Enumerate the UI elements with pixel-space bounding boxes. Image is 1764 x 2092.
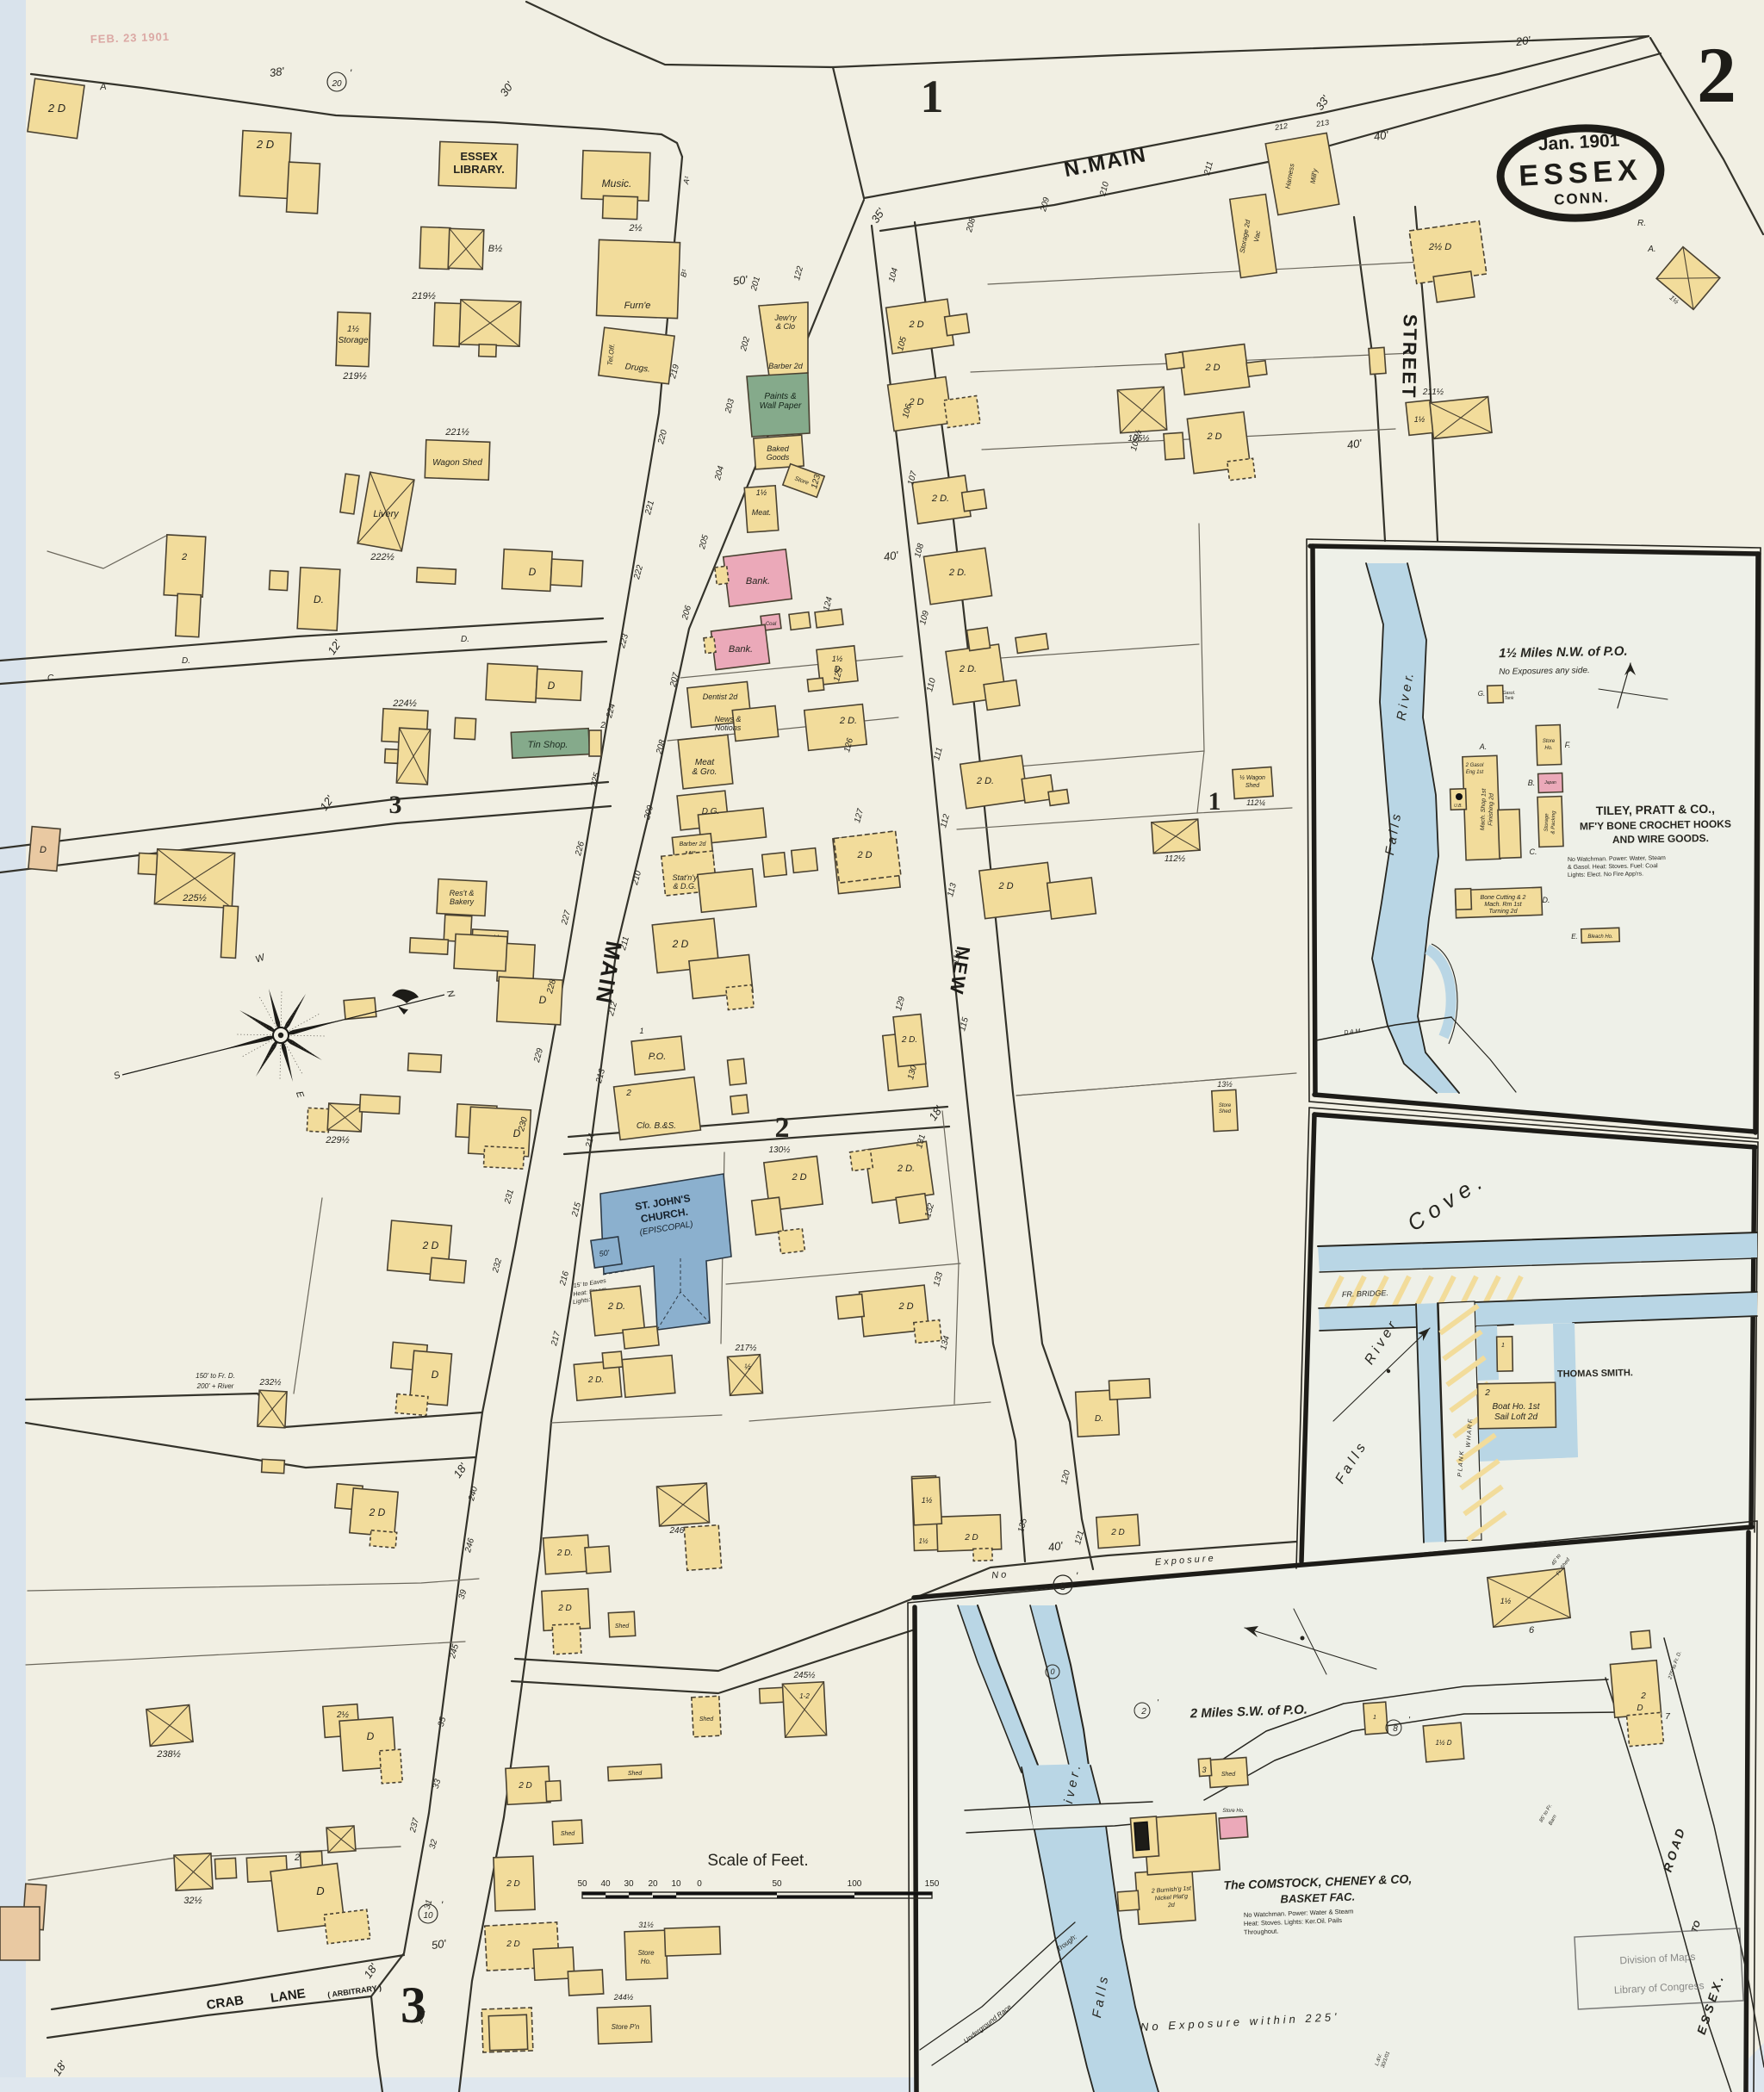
svg-text:1½: 1½: [832, 655, 843, 663]
svg-text:2 D.: 2 D.: [587, 1375, 604, 1385]
svg-text:1: 1: [921, 71, 944, 122]
svg-text:20': 20': [1514, 34, 1531, 48]
svg-text:2: 2: [625, 1089, 631, 1098]
svg-text:Goods: Goods: [767, 453, 790, 462]
svg-text:2 D.: 2 D.: [556, 1549, 573, 1558]
svg-text:D.: D.: [1543, 896, 1550, 904]
svg-text:THOMAS SMITH.: THOMAS SMITH.: [1557, 1368, 1633, 1380]
svg-text:A.: A.: [1647, 245, 1655, 254]
svg-text:Bone Cutting & 2: Bone Cutting & 2: [1481, 895, 1526, 901]
svg-text:P.O.: P.O.: [649, 1052, 667, 1062]
svg-text:10: 10: [671, 1879, 681, 1889]
svg-text:Ho.: Ho.: [1544, 746, 1552, 751]
svg-text:2 D.: 2 D.: [976, 776, 994, 786]
svg-text:A: A: [99, 82, 107, 93]
svg-text:1-2: 1-2: [799, 1692, 810, 1700]
svg-text:Finishing 2d: Finishing 2d: [1488, 792, 1494, 826]
svg-text:112½: 112½: [1165, 854, 1186, 864]
svg-text:LIBRARY.: LIBRARY.: [453, 163, 504, 176]
svg-text:2: 2: [1140, 1707, 1146, 1716]
svg-text:50': 50': [732, 273, 748, 288]
svg-text:U.B.: U.B.: [1454, 804, 1463, 809]
svg-text:Mach. Rm 1st: Mach. Rm 1st: [1484, 902, 1522, 908]
svg-text:2 D.: 2 D.: [959, 664, 977, 674]
svg-text:2 D: 2 D: [791, 1172, 806, 1183]
svg-text:1: 1: [639, 1027, 643, 1035]
svg-text:Jew'ry: Jew'ry: [773, 313, 797, 322]
svg-text:Store P'n: Store P'n: [612, 2023, 640, 2031]
svg-text:Storage: Storage: [1544, 813, 1550, 832]
svg-text:Shed: Shed: [1221, 1772, 1236, 1778]
svg-text:FR. BRIDGE.: FR. BRIDGE.: [1342, 1288, 1388, 1299]
svg-text:1: 1: [1373, 1715, 1376, 1721]
svg-text:40': 40': [1346, 437, 1363, 451]
svg-text:D.G.: D.G.: [702, 807, 720, 816]
svg-text:2 D: 2 D: [518, 1781, 532, 1791]
svg-text:32½: 32½: [183, 1896, 202, 1906]
svg-text:Tin Shop.: Tin Shop.: [528, 740, 568, 750]
svg-text:2 D: 2 D: [672, 938, 689, 950]
svg-text:200' + River: 200' + River: [196, 1382, 234, 1390]
svg-text:2 D: 2 D: [557, 1604, 572, 1613]
svg-text:31½: 31½: [638, 1921, 654, 1929]
svg-text:2 D.: 2 D.: [948, 568, 966, 578]
svg-text:1½: 1½: [918, 1537, 928, 1545]
svg-text:Barber 2d: Barber 2d: [768, 362, 804, 370]
svg-text:217½: 217½: [734, 1344, 757, 1353]
svg-text:Ho.: Ho.: [641, 1958, 651, 1965]
svg-text:2 D: 2 D: [47, 102, 65, 115]
svg-text:D: D: [1637, 1704, 1643, 1713]
svg-text:Bakery: Bakery: [450, 897, 475, 906]
svg-text:& Gro.: & Gro.: [693, 767, 717, 777]
svg-text:20: 20: [331, 79, 342, 89]
svg-text:1½ D: 1½ D: [1435, 1739, 1451, 1747]
svg-text:2½ D: 2½ D: [1428, 242, 1451, 252]
svg-text:Store: Store: [1219, 1103, 1232, 1108]
svg-text:8: 8: [1393, 1724, 1398, 1734]
svg-text:Shed: Shed: [1245, 783, 1260, 789]
svg-text:50': 50': [599, 1248, 610, 1258]
svg-text:245½: 245½: [792, 1671, 816, 1680]
svg-text:Meat: Meat: [695, 758, 715, 767]
svg-text:Shed: Shed: [561, 1831, 575, 1837]
svg-text:Store Ho.: Store Ho.: [1222, 1809, 1244, 1814]
svg-text:Bleach Ho.: Bleach Ho.: [1587, 934, 1612, 940]
svg-text:2 D: 2 D: [506, 1940, 520, 1949]
svg-text:2: 2: [181, 552, 187, 562]
svg-text:2 D.: 2 D.: [897, 1164, 915, 1174]
svg-text:2 D: 2 D: [1204, 363, 1220, 373]
svg-text:219½: 219½: [342, 371, 367, 382]
svg-text:225½: 225½: [182, 893, 207, 903]
svg-text:Shed: Shed: [615, 1623, 630, 1630]
svg-text:150: 150: [925, 1879, 940, 1889]
svg-text:G.: G.: [1478, 690, 1485, 698]
svg-text:1½: 1½: [1414, 415, 1425, 424]
svg-text:CONN.: CONN.: [1554, 189, 1611, 208]
svg-text:1½: 1½: [347, 325, 360, 334]
svg-text:244½: 244½: [613, 1993, 634, 2002]
svg-text:229½: 229½: [325, 1135, 350, 1145]
svg-text:B.: B.: [1528, 779, 1536, 787]
svg-text:2 D: 2 D: [506, 1879, 520, 1889]
svg-text:Livery: Livery: [373, 509, 400, 519]
svg-text:E.: E.: [1571, 933, 1578, 940]
svg-text:Music.: Music.: [602, 177, 632, 189]
svg-text:D: D: [432, 1369, 439, 1381]
svg-text:2: 2: [775, 1112, 790, 1144]
svg-text:Throughout.: Throughout.: [1244, 1927, 1279, 1936]
svg-text:Store: Store: [637, 1949, 655, 1957]
svg-text:40: 40: [600, 1879, 611, 1889]
svg-text:221½: 221½: [444, 427, 469, 438]
svg-text:2 D: 2 D: [369, 1506, 386, 1518]
svg-text:50': 50': [431, 1937, 447, 1952]
svg-text:2 D.: 2 D.: [839, 716, 857, 726]
svg-text:D: D: [539, 994, 547, 1006]
svg-text:D: D: [40, 845, 47, 855]
svg-text:Res't &: Res't &: [450, 889, 475, 897]
svg-text:½ Wagon: ½ Wagon: [1239, 774, 1265, 781]
svg-text:2 Gasol: 2 Gasol: [1465, 763, 1484, 768]
svg-text:20: 20: [648, 1879, 658, 1889]
svg-text:2 D: 2 D: [422, 1239, 439, 1251]
svg-text:News &: News &: [714, 715, 741, 723]
svg-text:TILEY, PRATT & CO.,: TILEY, PRATT & CO.,: [1596, 802, 1715, 817]
svg-text:2 D: 2 D: [964, 1533, 978, 1543]
svg-text:30: 30: [624, 1879, 634, 1889]
svg-text:& Clo: & Clo: [776, 322, 795, 331]
svg-text:D.: D.: [461, 635, 469, 644]
svg-text:232½: 232½: [258, 1378, 282, 1387]
svg-text:D: D: [529, 566, 537, 578]
svg-text:40': 40': [1047, 1539, 1064, 1554]
svg-text:Storage: Storage: [338, 336, 368, 345]
svg-text:AND WIRE GOODS.: AND WIRE GOODS.: [1612, 832, 1709, 846]
svg-text:40': 40': [883, 549, 899, 563]
svg-text:224½: 224½: [392, 698, 417, 709]
svg-text:Eng 1st: Eng 1st: [1466, 770, 1484, 775]
svg-text:1½: 1½: [1500, 1597, 1512, 1605]
svg-text:40': 40': [1373, 128, 1389, 143]
svg-text:38': 38': [269, 65, 285, 79]
svg-text:ESSEX: ESSEX: [460, 150, 498, 163]
svg-text:1: 1: [1208, 787, 1221, 816]
svg-text:2 D: 2 D: [908, 320, 923, 330]
svg-text:Meat.: Meat.: [752, 508, 772, 517]
svg-text:13½: 13½: [1217, 1080, 1233, 1089]
svg-text:130½: 130½: [768, 1145, 791, 1155]
svg-text:150' to Fr. D.: 150' to Fr. D.: [196, 1372, 235, 1380]
svg-text:1: 1: [1501, 1343, 1505, 1349]
svg-text:Boat Ho. 1st: Boat Ho. 1st: [1492, 1402, 1540, 1412]
svg-text:Wagon Shed: Wagon Shed: [432, 458, 482, 468]
svg-text:D.: D.: [314, 593, 324, 605]
svg-text:R.: R.: [1637, 219, 1646, 228]
svg-text:Paints &: Paints &: [764, 392, 797, 401]
svg-text:2 D: 2 D: [997, 881, 1013, 891]
svg-text:1½: 1½: [756, 488, 767, 497]
svg-text:2: 2: [1697, 31, 1736, 119]
svg-text:F.: F.: [1565, 741, 1571, 749]
svg-text:Dentist 2d: Dentist 2d: [703, 692, 739, 701]
svg-text:A.: A.: [1479, 742, 1488, 751]
svg-text:2 D: 2 D: [1206, 431, 1221, 442]
svg-text:& D.G.: & D.G.: [673, 882, 696, 891]
svg-text:2 D.: 2 D.: [931, 494, 949, 504]
svg-text:Tank: Tank: [1505, 696, 1514, 701]
svg-text:Sail Loft 2d: Sail Loft 2d: [1494, 1412, 1537, 1422]
svg-text:5: 5: [1060, 1580, 1066, 1592]
svg-text:219½: 219½: [411, 291, 436, 301]
svg-text:Barber 2d: Barber 2d: [680, 841, 707, 847]
svg-text:2: 2: [599, 721, 606, 730]
svg-text:222½: 222½: [370, 552, 394, 562]
svg-text:B½: B½: [488, 244, 503, 254]
svg-text:2½: 2½: [628, 223, 642, 233]
svg-text:50: 50: [772, 1879, 782, 1889]
svg-text:2d: 2d: [1167, 1903, 1176, 1909]
svg-text:D.: D.: [1095, 1414, 1103, 1424]
svg-text:& Packing: & Packing: [1551, 810, 1557, 835]
svg-text:112¼: 112¼: [1246, 798, 1265, 807]
svg-text:Shed: Shed: [699, 1716, 714, 1723]
svg-text:Japan: Japan: [1543, 780, 1556, 785]
svg-text:Stat'n'y: Stat'n'y: [673, 873, 698, 882]
svg-text:C.: C.: [47, 674, 56, 683]
svg-text:2½: 2½: [336, 1710, 350, 1720]
svg-text:Scale of Feet.: Scale of Feet.: [707, 1852, 808, 1870]
svg-text:½: ½: [744, 1363, 751, 1371]
svg-text:D.: D.: [182, 656, 190, 666]
svg-text:2 D: 2 D: [898, 1301, 913, 1312]
svg-text:50: 50: [577, 1879, 587, 1889]
svg-text:STREET: STREET: [1398, 314, 1421, 400]
svg-text:C.: C.: [1530, 847, 1537, 856]
svg-text:3: 3: [1202, 1766, 1206, 1774]
svg-text:0: 0: [697, 1879, 702, 1889]
svg-text:2 D: 2 D: [256, 138, 274, 151]
svg-text:Notions: Notions: [715, 723, 742, 732]
svg-text:2: 2: [294, 1853, 300, 1863]
svg-text:Bank.: Bank.: [729, 644, 753, 655]
svg-text:Shed: Shed: [1219, 1109, 1232, 1114]
svg-text:0: 0: [1050, 1667, 1054, 1676]
svg-text:211½: 211½: [1422, 388, 1444, 397]
svg-text:7: 7: [1665, 1712, 1670, 1722]
svg-text:Shed: Shed: [628, 1771, 643, 1777]
svg-text:2 D.: 2 D.: [607, 1301, 625, 1312]
svg-text:Coal: Coal: [766, 622, 777, 627]
svg-text:D: D: [548, 680, 556, 692]
svg-text:D: D: [367, 1730, 375, 1742]
svg-text:Furn'e: Furn'e: [624, 301, 651, 311]
svg-text:D: D: [316, 1884, 324, 1897]
svg-text:10: 10: [423, 1911, 433, 1921]
svg-text:100: 100: [848, 1879, 862, 1889]
svg-text:Wall Paper: Wall Paper: [760, 401, 802, 411]
svg-text:N o: N o: [991, 1569, 1007, 1580]
svg-text:Bank.: Bank.: [746, 576, 770, 587]
svg-text:2 D: 2 D: [856, 850, 872, 860]
svg-text:3: 3: [389, 791, 402, 819]
svg-text:1½: 1½: [922, 1496, 933, 1505]
svg-text:Turning 2d: Turning 2d: [1489, 909, 1519, 915]
svg-text:ESSEX: ESSEX: [1518, 153, 1643, 192]
svg-text:6: 6: [1529, 1625, 1535, 1636]
svg-text:BASKET FAC.: BASKET FAC.: [1280, 1890, 1355, 1905]
svg-text:1½ Miles N.W. of P.O.: 1½ Miles N.W. of P.O.: [1499, 644, 1628, 661]
svg-text:2: 2: [1640, 1692, 1646, 1701]
svg-text:Clo. B.&S.: Clo. B.&S.: [637, 1121, 676, 1131]
svg-text:Baked: Baked: [767, 444, 790, 453]
svg-text:2 D.: 2 D.: [901, 1035, 917, 1045]
svg-text:238½: 238½: [156, 1749, 181, 1760]
svg-text:2: 2: [1484, 1388, 1490, 1398]
svg-text:No Exposures any side.: No Exposures any side.: [1499, 666, 1590, 677]
svg-text:Store: Store: [1543, 739, 1556, 744]
svg-text:2 D: 2 D: [1110, 1528, 1125, 1537]
